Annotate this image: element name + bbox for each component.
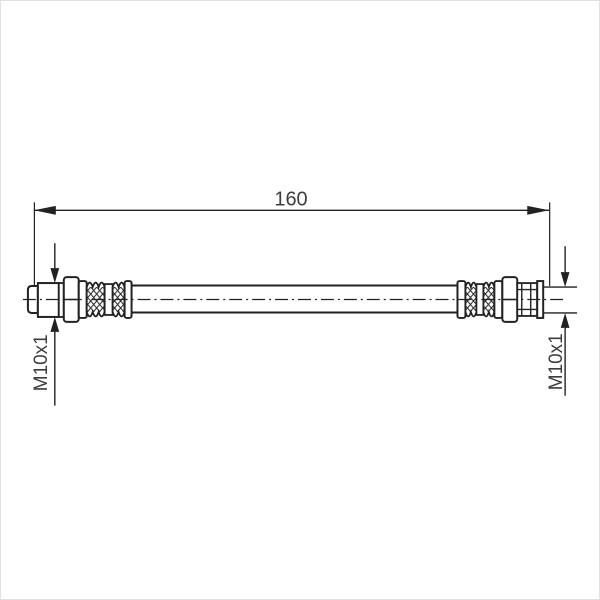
left-up-arrow-icon — [50, 317, 59, 332]
length-dimension — [34, 202, 550, 286]
right-down-arrow-icon — [561, 272, 570, 287]
hose-drawing-svg: 160 M10x1 M10x1 — [1, 1, 599, 599]
length-dimension-label: 160 — [274, 188, 307, 210]
left-down-arrow-icon — [50, 268, 59, 283]
right-thread-label: M10x1 — [546, 333, 567, 390]
dimension-arrow-left-icon — [34, 206, 56, 215]
left-thread-label: M10x1 — [31, 334, 52, 391]
dimension-arrow-right-icon — [527, 206, 549, 215]
right-up-arrow-icon — [561, 313, 570, 328]
product-technical-drawing: 160 M10x1 M10x1 — [0, 0, 600, 600]
